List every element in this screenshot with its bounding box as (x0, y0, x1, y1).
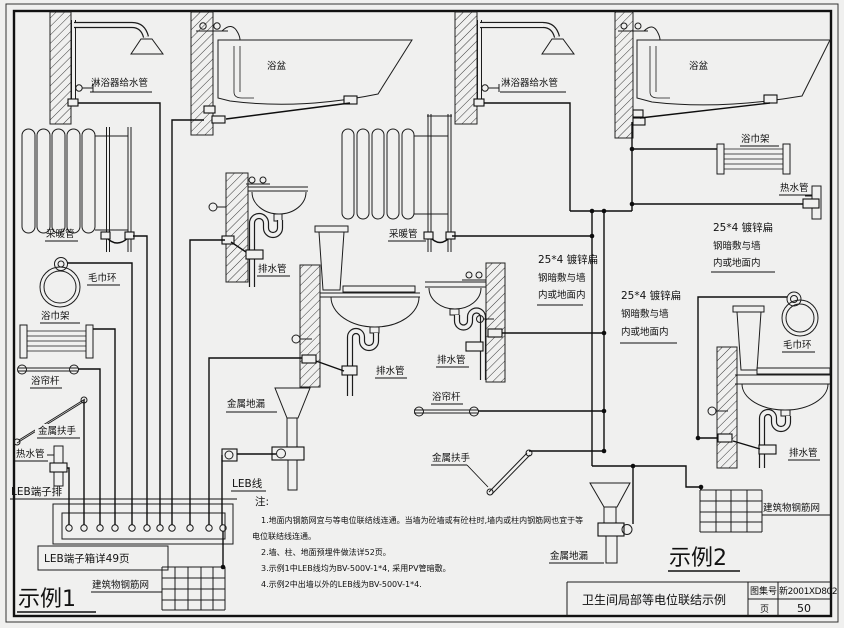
flat-steel-2-line2: 钢暗敷与墙 (621, 308, 669, 320)
label-floor-drain-1: 金属地漏 (227, 398, 265, 410)
flat-steel-2-line3: 内或地面内 (621, 326, 669, 338)
rebar-mesh-2 (700, 490, 762, 532)
radiator-1 (22, 127, 134, 252)
towel-rack-2 (717, 144, 790, 174)
label-bathtub-1: 浴盆 (267, 60, 287, 72)
bathtub-2 (615, 12, 830, 138)
flat-steel-1-line3: 内或地面内 (538, 289, 586, 301)
label-hot-water-2: 热水管 (780, 182, 809, 194)
flat-steel-3-line1: 25*4 镀锌扁 (713, 221, 773, 234)
note-1: 1.地面内钢筋网宜与等电位联结线连通。当墙为砼墙或有砼柱时,墙内或柱内钢筋网也宜… (261, 515, 583, 525)
inner-border (14, 11, 831, 616)
label-example-2: 示例2 (669, 546, 727, 571)
atlas-label: 图集号 (750, 585, 777, 597)
label-leb-box: LEB端子箱详49页 (44, 552, 130, 565)
label-handrail-2: 金属扶手 (432, 452, 471, 464)
drawing-sheet: 淋浴器给水管 浴盆 采暖管 毛巾环 浴巾架 浴帘杆 金属扶手 热水管 排水管 排… (0, 0, 844, 628)
page-number: 50 (797, 602, 811, 615)
shower-head-icon (542, 39, 574, 54)
page-label: 页 (760, 604, 769, 615)
label-shower-supply-2: 淋浴器给水管 (501, 77, 558, 89)
title-block: 卫生间局部等电位联结示例 图集号 新2001XD802 页 50 (567, 582, 837, 616)
flat-steel-3-line3: 内或地面内 (713, 257, 761, 269)
flat-steel-1-line2: 钢暗敷与墙 (538, 272, 586, 284)
label-drain-pipe-2: 排水管 (376, 365, 405, 377)
label-bathtub-2: 浴盆 (689, 60, 709, 72)
label-towel-rack-1: 浴巾架 (41, 310, 70, 322)
label-towel-rack-2: 浴巾架 (741, 133, 770, 145)
bathtub-1 (191, 12, 412, 135)
shower-2 (455, 12, 574, 124)
label-shower-supply-1: 淋浴器给水管 (91, 77, 148, 89)
label-leb-strip: LEB端子排 (11, 485, 63, 498)
label-drain-pipe-4: 排水管 (789, 447, 818, 459)
drawing-title: 卫生间局部等电位联结示例 (582, 592, 726, 607)
toilet-2 (708, 306, 830, 468)
flat-steel-3-line2: 钢暗敷与墙 (713, 240, 761, 252)
outer-border (6, 4, 838, 622)
floor-drain-2 (590, 483, 632, 563)
notes-heading: 注: (255, 495, 269, 508)
label-heating-pipe-2: 采暖管 (389, 228, 418, 240)
label-heating-pipe-1: 采暖管 (46, 228, 75, 240)
label-handrail-1: 金属扶手 (38, 425, 77, 437)
label-towel-ring-1: 毛巾环 (88, 272, 117, 284)
label-leb-wire: LEB线 (232, 477, 263, 490)
curtain-rod-1 (18, 365, 79, 374)
label-floor-drain-2: 金属地漏 (550, 550, 588, 562)
towel-ring-1 (40, 258, 80, 308)
note-2: 2.墙、柱、地面预埋件做法详52页。 (261, 547, 391, 557)
towel-rack-1 (20, 325, 93, 358)
label-rebar-mesh-1: 建筑物钢筋网 (92, 579, 149, 591)
shower-head-icon (131, 39, 163, 54)
towel-ring-2 (782, 292, 818, 336)
flat-steel-annotations: 25*4 镀锌扁 钢暗敷与墙 内或地面内 25*4 镀锌扁 钢暗敷与墙 内或地面… (537, 221, 775, 343)
label-curtain-rod-2: 浴帘杆 (432, 391, 461, 403)
flat-steel-1-line1: 25*4 镀锌扁 (538, 253, 598, 266)
label-towel-ring-2: 毛巾环 (783, 339, 812, 351)
notes-block: 注: 1.地面内钢筋网宜与等电位联结线连通。当墙为砼墙或有砼柱时,墙内或柱内钢筋… (252, 495, 583, 589)
flat-steel-2-line1: 25*4 镀锌扁 (621, 289, 681, 302)
label-rebar-mesh-2: 建筑物钢筋网 (763, 502, 820, 514)
note-1b: 电位联结线连通。 (252, 531, 316, 541)
label-hot-water-1: 热水管 (16, 448, 45, 460)
atlas-number: 新2001XD802 (779, 585, 837, 597)
rebar-mesh-1 (162, 567, 225, 610)
label-drain-pipe-3: 排水管 (437, 354, 466, 366)
label-drain-pipe-1: 排水管 (258, 263, 287, 275)
label-example-1: 示例1 (18, 587, 76, 612)
curtain-rod-2 (414, 407, 479, 416)
label-curtain-rod-1: 浴帘杆 (31, 375, 60, 387)
shower-1 (50, 12, 163, 124)
note-3: 3.示例1中LEB线均为BV-500V-1*4, 采用PV管暗敷。 (261, 563, 451, 573)
note-4: 4.示例2中出墙以外的LEB线为BV-500V-1*4. (261, 579, 422, 589)
handrail-2 (487, 450, 532, 495)
cad-diagram: 淋浴器给水管 浴盆 采暖管 毛巾环 浴巾架 浴帘杆 金属扶手 热水管 排水管 排… (0, 0, 844, 628)
hot-water-pipe-1 (47, 446, 67, 486)
